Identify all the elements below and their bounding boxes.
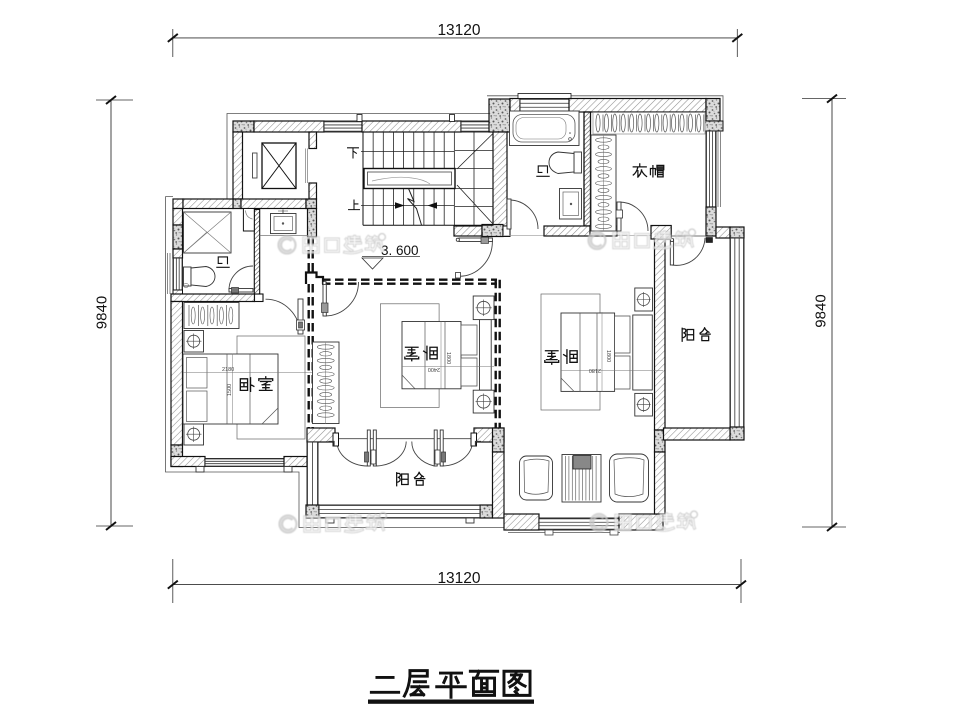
svg-text:3. 600: 3. 600 [381,243,419,258]
svg-text:2400: 2400 [428,366,440,372]
svg-text:2180: 2180 [589,367,601,373]
svg-text:9840: 9840 [94,296,111,329]
svg-text:13120: 13120 [437,570,480,587]
svg-text:9840: 9840 [813,294,830,327]
svg-text:1800: 1800 [445,352,451,364]
svg-text:13120: 13120 [437,22,480,39]
svg-text:1500: 1500 [227,384,233,396]
svg-text:1800: 1800 [605,350,611,362]
svg-text:2180: 2180 [222,367,234,373]
